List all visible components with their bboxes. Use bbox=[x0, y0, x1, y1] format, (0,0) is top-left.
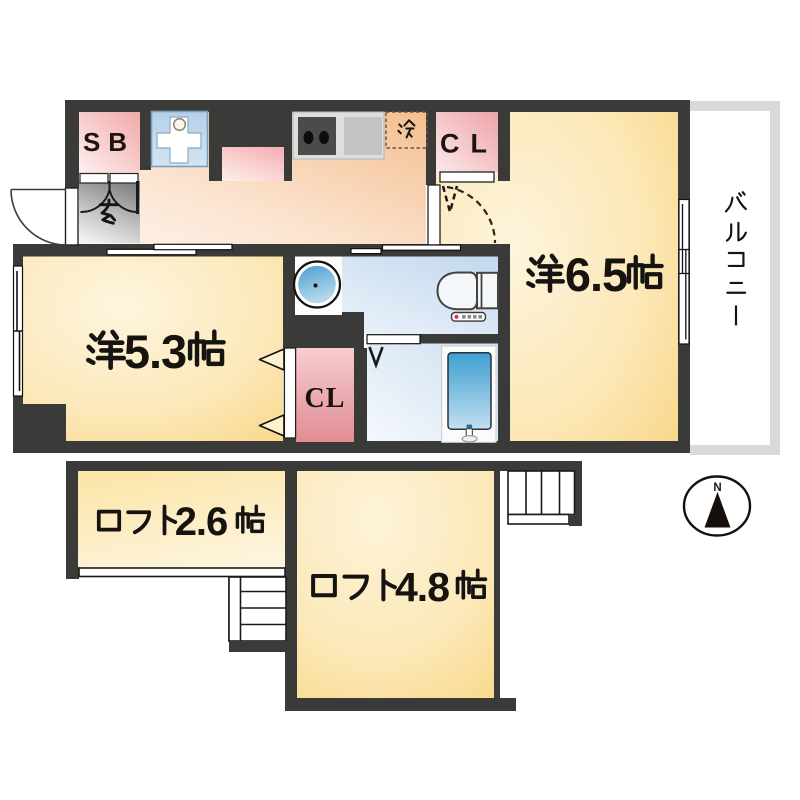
svg-text:SB: SB bbox=[83, 127, 135, 157]
svg-text:4.8: 4.8 bbox=[395, 564, 449, 610]
svg-text:CL: CL bbox=[440, 129, 498, 159]
svg-text:5.3: 5.3 bbox=[124, 325, 186, 378]
svg-text:CL: CL bbox=[305, 383, 346, 414]
svg-text:2.6: 2.6 bbox=[175, 500, 228, 544]
svg-text:6.5: 6.5 bbox=[565, 248, 627, 301]
